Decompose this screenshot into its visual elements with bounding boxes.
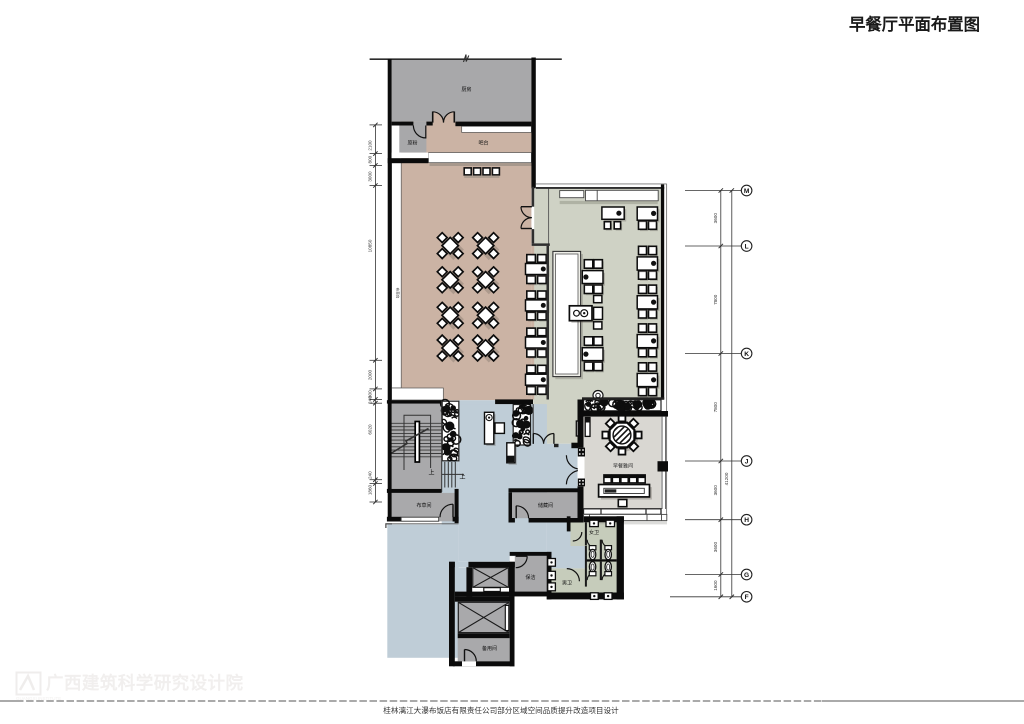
- svg-text:3000: 3000: [368, 171, 373, 182]
- svg-text:吧台: 吧台: [478, 140, 488, 147]
- svg-text:3600: 3600: [713, 542, 718, 553]
- svg-text:1860: 1860: [368, 484, 373, 495]
- svg-text:1600: 1600: [713, 580, 718, 591]
- svg-text:3600: 3600: [713, 213, 718, 224]
- svg-text:布菜台: 布菜台: [396, 288, 401, 299]
- svg-text:41200: 41200: [724, 472, 729, 485]
- svg-text:早餐雅间: 早餐雅间: [613, 463, 633, 470]
- svg-text:240: 240: [368, 471, 373, 479]
- svg-text:原粉: 原粉: [407, 140, 417, 147]
- svg-text:7800: 7800: [713, 294, 718, 305]
- svg-text:上: 上: [429, 469, 435, 477]
- svg-text:上: 上: [460, 473, 466, 481]
- svg-text:女卫: 女卫: [589, 529, 599, 536]
- svg-text:M: M: [744, 188, 750, 195]
- svg-text:早餐厅平面布置图: 早餐厅平面布置图: [849, 15, 980, 34]
- svg-text:广西建筑科学研究设计院: 广西建筑科学研究设计院: [46, 673, 244, 693]
- svg-text:7800: 7800: [713, 402, 718, 413]
- svg-text:J: J: [745, 458, 749, 465]
- svg-text:L: L: [745, 243, 749, 250]
- svg-text:保洁: 保洁: [525, 574, 535, 581]
- svg-text:桂林漓江大瀑布饭店有限责任公司部分区域空间品质提升改造项目设: 桂林漓江大瀑布饭店有限责任公司部分区域空间品质提升改造项目设计: [383, 705, 619, 715]
- svg-text:240: 240: [368, 396, 373, 404]
- svg-text:男卫: 男卫: [562, 581, 572, 587]
- svg-text:G: G: [744, 572, 749, 579]
- svg-text:K: K: [744, 351, 749, 358]
- svg-text:备用间: 备用间: [482, 645, 497, 652]
- svg-text:GUANGXI INSTITUTE: GUANGXI INSTITUTE: [16, 696, 61, 701]
- svg-text:布草间: 布草间: [416, 502, 431, 509]
- svg-text:2100: 2100: [368, 140, 373, 151]
- svg-text:H: H: [744, 517, 749, 524]
- svg-text:F: F: [745, 594, 749, 601]
- svg-text:6020: 6020: [368, 424, 373, 435]
- svg-text:800: 800: [368, 155, 373, 163]
- svg-text:2000: 2000: [368, 369, 373, 380]
- svg-text:10850: 10850: [368, 239, 373, 252]
- svg-text:厨房: 厨房: [461, 86, 471, 93]
- svg-text:3600: 3600: [713, 485, 718, 496]
- svg-text:储藏间: 储藏间: [538, 502, 553, 509]
